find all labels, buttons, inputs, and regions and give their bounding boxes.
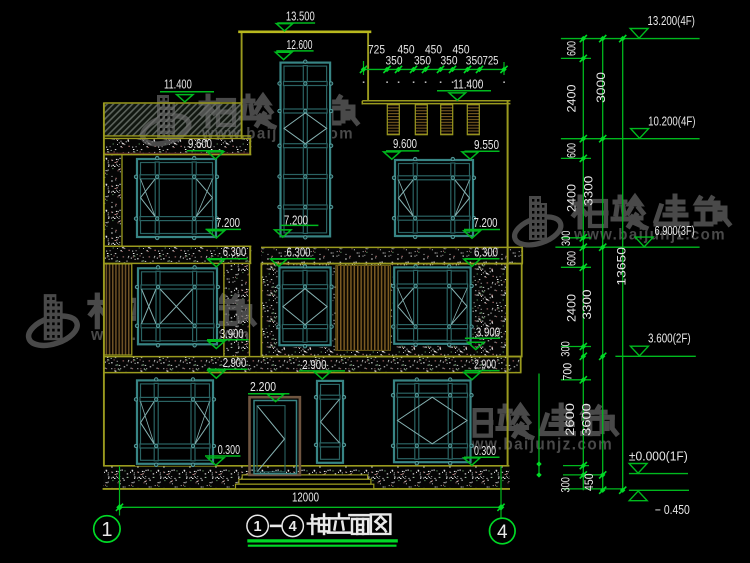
svg-text:7.200: 7.200 <box>474 216 498 230</box>
svg-text:4: 4 <box>289 519 297 535</box>
svg-text:6.900(3F): 6.900(3F) <box>655 224 695 238</box>
svg-text:2.900: 2.900 <box>223 356 246 370</box>
svg-text:2.900: 2.900 <box>474 358 496 372</box>
svg-text:700: 700 <box>563 363 575 381</box>
svg-text:300: 300 <box>561 341 573 356</box>
svg-text:9.600: 9.600 <box>188 137 212 151</box>
svg-text:600: 600 <box>567 143 579 158</box>
svg-text:7.200: 7.200 <box>216 216 240 230</box>
svg-text:3600: 3600 <box>582 403 594 436</box>
svg-text:13.500: 13.500 <box>286 10 315 24</box>
svg-text:1: 1 <box>254 519 262 535</box>
svg-text:300: 300 <box>561 231 573 246</box>
svg-text:− 0.450: − 0.450 <box>655 503 690 517</box>
svg-text:1: 1 <box>101 519 112 541</box>
svg-text:0.300: 0.300 <box>218 443 240 457</box>
svg-text:2400: 2400 <box>567 184 579 212</box>
svg-text:13.200(4F): 13.200(4F) <box>648 14 695 28</box>
svg-text:6.300: 6.300 <box>223 245 246 259</box>
svg-text:2.200: 2.200 <box>250 380 276 394</box>
svg-text:12.600: 12.600 <box>287 38 313 52</box>
svg-text:350: 350 <box>466 53 483 67</box>
svg-text:350: 350 <box>386 53 403 67</box>
svg-text:6.300: 6.300 <box>474 245 498 259</box>
svg-text:2400: 2400 <box>567 85 579 113</box>
svg-text:600: 600 <box>567 251 579 266</box>
svg-text:725: 725 <box>483 53 499 67</box>
svg-text:0.300: 0.300 <box>474 444 496 458</box>
svg-text:725: 725 <box>368 43 385 57</box>
svg-text:11.400: 11.400 <box>164 78 192 92</box>
svg-text:300: 300 <box>561 477 573 492</box>
svg-text:10.200(4F): 10.200(4F) <box>648 115 695 129</box>
svg-text:9.600: 9.600 <box>393 137 417 151</box>
svg-text:13650: 13650 <box>617 247 629 286</box>
svg-text:350: 350 <box>414 53 431 67</box>
svg-text:9.550: 9.550 <box>474 138 499 152</box>
svg-text:3000: 3000 <box>596 72 608 103</box>
svg-text:2400: 2400 <box>567 294 579 322</box>
svg-text:4: 4 <box>497 522 508 543</box>
svg-text:3300: 3300 <box>582 290 594 320</box>
svg-text:3300: 3300 <box>584 176 596 206</box>
svg-text:350: 350 <box>441 53 458 67</box>
svg-text:2600: 2600 <box>565 403 577 436</box>
svg-text:3.900: 3.900 <box>476 325 500 339</box>
svg-text:12000: 12000 <box>292 491 319 505</box>
svg-text:±0.000(1F): ±0.000(1F) <box>629 449 688 463</box>
svg-text:600: 600 <box>567 41 579 56</box>
svg-text:11.400: 11.400 <box>453 77 483 91</box>
svg-text:2.900: 2.900 <box>302 358 326 372</box>
svg-text:3.600(2F): 3.600(2F) <box>648 331 691 345</box>
svg-text:3.900: 3.900 <box>220 327 244 341</box>
svg-text:450: 450 <box>584 473 596 491</box>
svg-text:6.300: 6.300 <box>287 245 311 259</box>
